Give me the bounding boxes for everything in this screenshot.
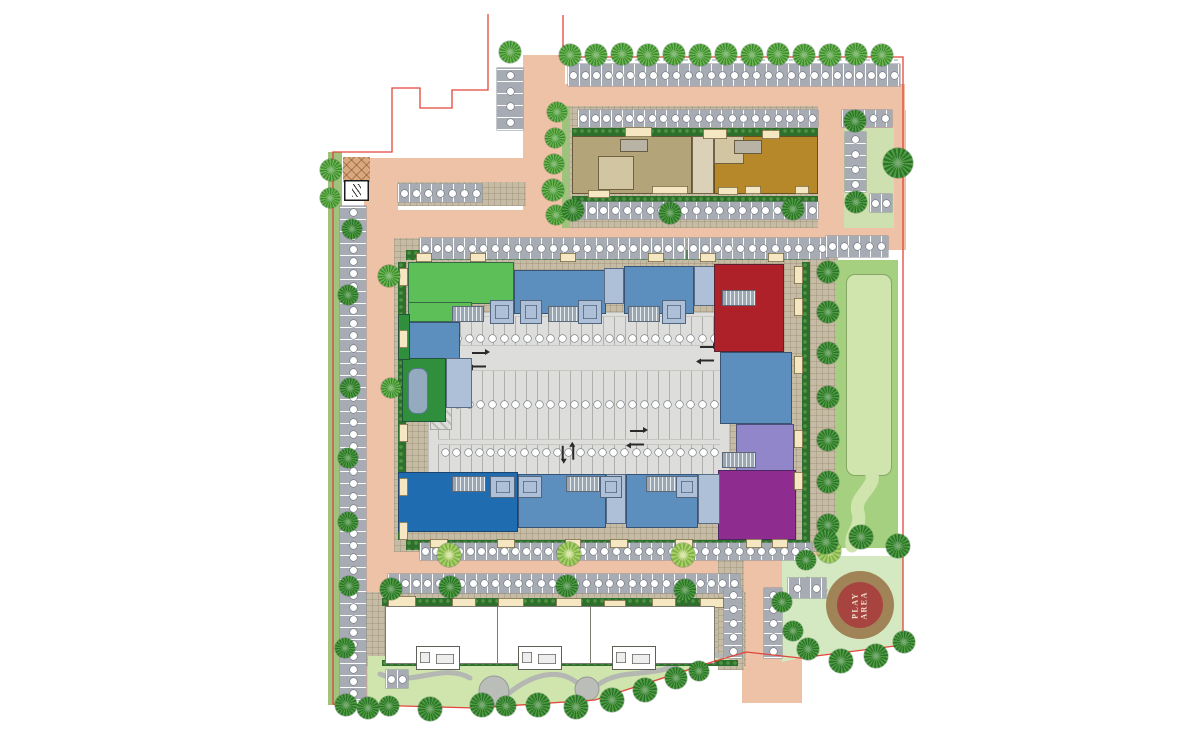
stall-number-circle: [807, 245, 814, 252]
stall-number-circle: [731, 72, 738, 79]
stair-core: [548, 306, 580, 322]
hedge-strip: [382, 660, 738, 666]
parking-row: [842, 110, 892, 127]
swimming-pool: [408, 368, 428, 414]
stall-number-circle: [512, 335, 519, 342]
stall-number-circle: [747, 548, 754, 555]
parking-stall-group: [438, 370, 720, 440]
entrance-porch: [794, 472, 803, 490]
stall-number-circle: [647, 207, 654, 214]
stall-number-circle: [481, 580, 488, 587]
stall-number-circle: [624, 548, 631, 555]
stall-number-circle: [350, 493, 357, 500]
tree-icon: [817, 539, 841, 563]
stall-number-circle: [758, 548, 765, 555]
stall-number-circle: [509, 449, 516, 456]
stall-number-circle: [467, 548, 474, 555]
tree-icon: [817, 261, 839, 283]
stall-number-circle: [437, 190, 444, 197]
stall-number-circle: [693, 207, 700, 214]
stair-lift-core: [612, 646, 656, 670]
plaza-circle: [575, 677, 599, 701]
stall-number-circle: [651, 580, 658, 587]
stall-number-circle: [507, 88, 514, 95]
entrance-porch: [768, 253, 784, 262]
stall-number-circle: [629, 335, 636, 342]
stall-number-circle: [350, 554, 357, 561]
stall-number-circle: [521, 449, 528, 456]
stall-number-circle: [673, 72, 680, 79]
entrance-porch: [560, 253, 576, 262]
parking-row: [420, 238, 686, 259]
stall-number-circle: [350, 542, 357, 549]
parking-row: [826, 236, 888, 257]
stall-number-circle: [742, 72, 749, 79]
tree-icon: [659, 202, 681, 224]
tree-icon: [357, 697, 379, 719]
stall-number-circle: [730, 592, 737, 599]
tree-icon: [817, 471, 839, 493]
stall-number-circle: [350, 406, 357, 413]
paved-area: [566, 106, 818, 228]
stall-number-circle: [478, 548, 485, 555]
road-segment: [366, 543, 818, 579]
transformer-icon: [352, 184, 361, 197]
bottom-garden: [368, 656, 742, 708]
parking-row: [688, 238, 828, 259]
road-segment: [688, 222, 830, 250]
tree-icon: [871, 44, 893, 66]
stall-number-circle: [719, 72, 726, 79]
stall-number-circle: [637, 115, 644, 122]
parking-stall-group: [438, 444, 720, 476]
stall-number-circle: [550, 245, 557, 252]
stall-number-circle: [870, 115, 877, 122]
tree-icon: [320, 188, 340, 208]
tree-icon: [893, 631, 915, 653]
stall-number-circle: [794, 585, 801, 592]
stall-number-circle: [714, 245, 721, 252]
stall-number-circle: [512, 548, 519, 555]
stall-number-circle: [666, 449, 673, 456]
hedge-strip: [802, 262, 810, 540]
entrance-porch: [652, 598, 676, 608]
tree-icon: [338, 285, 358, 305]
stall-number-circle: [543, 449, 550, 456]
green-area: [836, 260, 898, 548]
tower-core: [606, 474, 626, 524]
stall-number-circle: [737, 245, 744, 252]
stall-number-circle: [852, 136, 859, 143]
stall-number-circle: [350, 295, 357, 302]
stall-number-circle: [776, 72, 783, 79]
stall-number-circle: [770, 634, 777, 641]
stall-number-circle: [350, 443, 357, 450]
stall-number-circle: [705, 207, 712, 214]
stall-number-circle: [477, 401, 484, 408]
stall-number-circle: [640, 580, 647, 587]
stall-number-circle: [699, 335, 706, 342]
tree-icon: [817, 514, 839, 536]
stall-number-circle: [788, 72, 795, 79]
entrance-porch: [388, 596, 416, 607]
stall-number-circle: [652, 401, 659, 408]
garden-paths-svg: [0, 0, 1200, 733]
parking-row: [788, 578, 826, 598]
stall-number-circle: [607, 245, 614, 252]
stall-number-circle: [501, 401, 508, 408]
garden-lawn: [846, 274, 892, 476]
tree-icon: [335, 638, 355, 658]
stall-number-circle: [652, 335, 659, 342]
stall-number-circle: [466, 335, 473, 342]
stall-number-circle: [762, 207, 769, 214]
direction-arrow: [700, 360, 714, 362]
parking-row: [845, 132, 866, 192]
stall-number-circle: [449, 190, 456, 197]
entrance-porch: [794, 356, 803, 374]
direction-arrow: [630, 430, 644, 432]
stall-number-circle: [436, 580, 443, 587]
stall-number-circle: [476, 449, 483, 456]
stall-number-circle: [470, 580, 477, 587]
stall-number-circle: [388, 676, 395, 683]
stall-number-circle: [829, 243, 836, 250]
stall-number-circle: [891, 72, 898, 79]
stall-number-circle: [350, 332, 357, 339]
stall-number-circle: [752, 115, 759, 122]
stall-number-circle: [676, 401, 683, 408]
tower-core: [694, 266, 716, 306]
direction-arrow: [472, 366, 486, 368]
tree-icon: [546, 205, 566, 225]
stall-number-circle: [577, 449, 584, 456]
stall-number-circle: [350, 530, 357, 537]
stall-number-circle: [765, 72, 772, 79]
hedge-strip: [398, 262, 406, 540]
stall-number-circle: [424, 580, 431, 587]
stall-number-circle: [613, 548, 620, 555]
stall-number-circle: [350, 431, 357, 438]
stall-number-circle: [672, 115, 679, 122]
road-segment: [364, 160, 398, 703]
stall-number-circle: [536, 335, 543, 342]
stall-number-circle: [630, 245, 637, 252]
tree-icon: [320, 159, 342, 181]
road-segment: [523, 84, 905, 114]
stall-number-circle: [523, 548, 530, 555]
tree-icon: [339, 576, 359, 596]
stall-number-circle: [702, 548, 709, 555]
stall-number-circle: [456, 548, 463, 555]
stall-number-circle: [696, 72, 703, 79]
entrance-porch: [497, 539, 515, 548]
stall-number-circle: [784, 245, 791, 252]
stall-number-circle: [350, 270, 357, 277]
stall-number-circle: [350, 579, 357, 586]
tree-icon: [783, 621, 803, 641]
stall-number-circle: [582, 335, 589, 342]
entrance-porch: [746, 539, 762, 548]
stall-number-circle: [603, 115, 610, 122]
stall-number-circle: [457, 245, 464, 252]
stall-number-circle: [799, 72, 806, 79]
stair-core: [722, 452, 756, 468]
play-area-circle: PLAY AREA: [837, 582, 883, 628]
tree-icon: [817, 386, 839, 408]
stall-number-circle: [492, 580, 499, 587]
stall-number-circle: [442, 401, 449, 408]
stall-number-circle: [681, 207, 688, 214]
tree-icon: [845, 43, 867, 65]
stall-number-circle: [601, 548, 608, 555]
stall-number-circle: [753, 72, 760, 79]
tree-icon: [611, 43, 633, 65]
entrance-porch: [703, 129, 727, 139]
stall-number-circle: [504, 580, 511, 587]
stall-number-circle: [600, 207, 607, 214]
stall-number-circle: [480, 245, 487, 252]
stall-number-circle: [795, 245, 802, 252]
roof-unit: [734, 140, 762, 154]
entrance-porch: [399, 478, 408, 496]
stall-number-circle: [350, 369, 357, 376]
stall-number-circle: [662, 72, 669, 79]
block-blue: [626, 474, 698, 528]
stall-number-circle: [687, 401, 694, 408]
tree-icon: [437, 543, 461, 567]
tree-icon: [439, 576, 461, 598]
stall-number-circle: [583, 580, 590, 587]
stall-number-circle: [524, 335, 531, 342]
direction-arrow: [700, 346, 714, 348]
lift-core: [518, 476, 542, 498]
stall-number-circle: [447, 580, 454, 587]
tree-icon: [633, 678, 657, 702]
stall-number-circle: [677, 245, 684, 252]
stall-number-circle: [545, 548, 552, 555]
stall-number-circle: [616, 72, 623, 79]
stall-number-circle: [775, 115, 782, 122]
tree-icon: [335, 694, 357, 716]
tree-icon: [544, 154, 564, 174]
tree-icon: [340, 378, 360, 398]
road-segment: [396, 210, 698, 250]
stall-number-circle: [813, 585, 820, 592]
stall-number-circle: [883, 200, 890, 207]
tree-icon: [886, 534, 910, 558]
stall-number-circle: [350, 567, 357, 574]
stall-number-circle: [689, 449, 696, 456]
stall-number-circle: [350, 468, 357, 475]
parking-row: [578, 110, 818, 127]
stall-number-circle: [489, 335, 496, 342]
entrance-porch: [399, 424, 408, 442]
entrance-porch: [604, 600, 626, 610]
direction-arrow: [472, 352, 486, 354]
stall-number-circle: [526, 245, 533, 252]
parking-row: [388, 574, 740, 593]
stall-number-circle: [606, 335, 613, 342]
stall-number-circle: [739, 207, 746, 214]
stall-number-circle: [670, 207, 677, 214]
stall-number-circle: [711, 449, 718, 456]
stall-number-circle: [454, 335, 461, 342]
top-building-court: [714, 136, 744, 164]
stall-number-circle: [350, 641, 357, 648]
roof-unit: [620, 139, 648, 152]
stall-number-circle: [593, 72, 600, 79]
stall-number-circle: [725, 548, 732, 555]
stall-number-circle: [713, 548, 720, 555]
parking-row: [420, 543, 812, 560]
tree-icon: [526, 693, 550, 717]
tower-core: [446, 358, 472, 408]
stall-number-circle: [610, 449, 617, 456]
stair-core: [646, 476, 680, 492]
stall-number-circle: [629, 401, 636, 408]
tree-icon: [470, 693, 494, 717]
stall-number-circle: [819, 245, 826, 252]
trees-layer: [0, 0, 1200, 733]
block-red: [714, 264, 784, 352]
tree-icon: [671, 543, 695, 567]
entrance-porch: [745, 186, 761, 194]
stall-number-circle: [654, 245, 661, 252]
stall-number-circle: [350, 357, 357, 364]
ramp: [430, 378, 452, 430]
paved-area: [366, 592, 746, 666]
entrance-porch: [700, 598, 724, 608]
tree-icon: [545, 128, 565, 148]
entrance-porch: [556, 598, 582, 608]
tree-icon: [542, 179, 564, 201]
stall-number-circle: [774, 207, 781, 214]
block-green: [408, 302, 472, 322]
play-label-line1: PLAY: [852, 591, 860, 619]
stall-number-circle: [685, 580, 692, 587]
stall-number-circle: [655, 449, 662, 456]
stall-number-circle: [658, 207, 665, 214]
stall-number-circle: [612, 207, 619, 214]
tree-icon: [817, 301, 839, 323]
parking-layer: [0, 0, 1200, 733]
stall-number-circle: [664, 401, 671, 408]
stall-number-circle: [554, 449, 561, 456]
tree-icon: [378, 265, 400, 287]
stall-number-circle: [570, 72, 577, 79]
play-garden: [782, 556, 903, 662]
stall-number-circle: [350, 246, 357, 253]
stall-number-circle: [641, 335, 648, 342]
entrance-porch: [470, 253, 486, 262]
tree-icon: [817, 429, 839, 451]
stall-number-circle: [350, 480, 357, 487]
block-blue: [720, 352, 792, 424]
tree-icon: [496, 696, 516, 716]
stall-number-circle: [433, 548, 440, 555]
stall-number-circle: [702, 245, 709, 252]
stall-number-circle: [469, 245, 476, 252]
stall-number-circle: [571, 335, 578, 342]
stall-number-circle: [700, 449, 707, 456]
tree-icon: [564, 695, 588, 719]
parking-row: [764, 588, 782, 658]
stall-number-circle: [669, 548, 676, 555]
tree-icon: [380, 578, 402, 600]
entrance-porch: [565, 539, 581, 548]
tree-icon: [797, 638, 819, 660]
stall-number-circle: [507, 119, 514, 126]
paved-area: [394, 238, 818, 552]
stall-number-circle: [749, 245, 756, 252]
courtyard-layer: [0, 0, 1200, 733]
entrance-porch: [772, 539, 788, 548]
stall-number-circle: [350, 209, 357, 216]
stall-number-circle: [852, 151, 859, 158]
stall-number-circle: [872, 200, 879, 207]
stall-number-circle: [617, 335, 624, 342]
stall-number-circle: [594, 401, 601, 408]
tree-icon: [342, 219, 362, 239]
stall-number-circle: [507, 103, 514, 110]
future-building-strip: [385, 606, 715, 664]
stair-lift-core: [518, 646, 562, 670]
stall-number-circle: [592, 115, 599, 122]
direction-arrow: [630, 444, 644, 446]
stall-number-circle: [736, 548, 743, 555]
block-blue: [624, 266, 694, 314]
stall-number-circle: [422, 548, 429, 555]
stall-number-circle: [350, 258, 357, 265]
stall-number-circle: [717, 115, 724, 122]
stall-number-circle: [572, 580, 579, 587]
stall-number-circle: [413, 580, 420, 587]
stall-number-circle: [822, 72, 829, 79]
entrance-porch: [794, 298, 803, 316]
stall-number-circle: [512, 401, 519, 408]
lift-core: [490, 476, 515, 498]
tree-icon: [637, 44, 659, 66]
entrance-porch: [675, 539, 693, 548]
stall-number-circle: [857, 115, 864, 122]
stall-number-circle: [489, 401, 496, 408]
stall-number-circle: [660, 115, 667, 122]
stall-number-circle: [797, 115, 804, 122]
entrance-porch: [399, 330, 408, 348]
tower-core: [604, 268, 624, 304]
green-area: [844, 128, 894, 228]
tree-icon: [379, 696, 399, 716]
stall-number-circle: [680, 548, 687, 555]
tree-icon: [418, 697, 442, 721]
top-building-left: [572, 136, 692, 194]
stall-number-circle: [350, 221, 357, 228]
stall-number-circle: [350, 690, 357, 697]
tree-icon: [585, 44, 607, 66]
tree-icon: [844, 110, 866, 132]
stall-number-circle: [687, 335, 694, 342]
stall-number-circle: [445, 245, 452, 252]
hedge-strip: [572, 196, 818, 205]
stall-number-circle: [716, 207, 723, 214]
stall-number-circle: [809, 115, 816, 122]
tree-icon: [499, 41, 521, 63]
stall-number-circle: [635, 548, 642, 555]
block-lavender: [736, 424, 794, 472]
stall-number-circle: [434, 245, 441, 252]
tree-icon: [782, 198, 804, 220]
